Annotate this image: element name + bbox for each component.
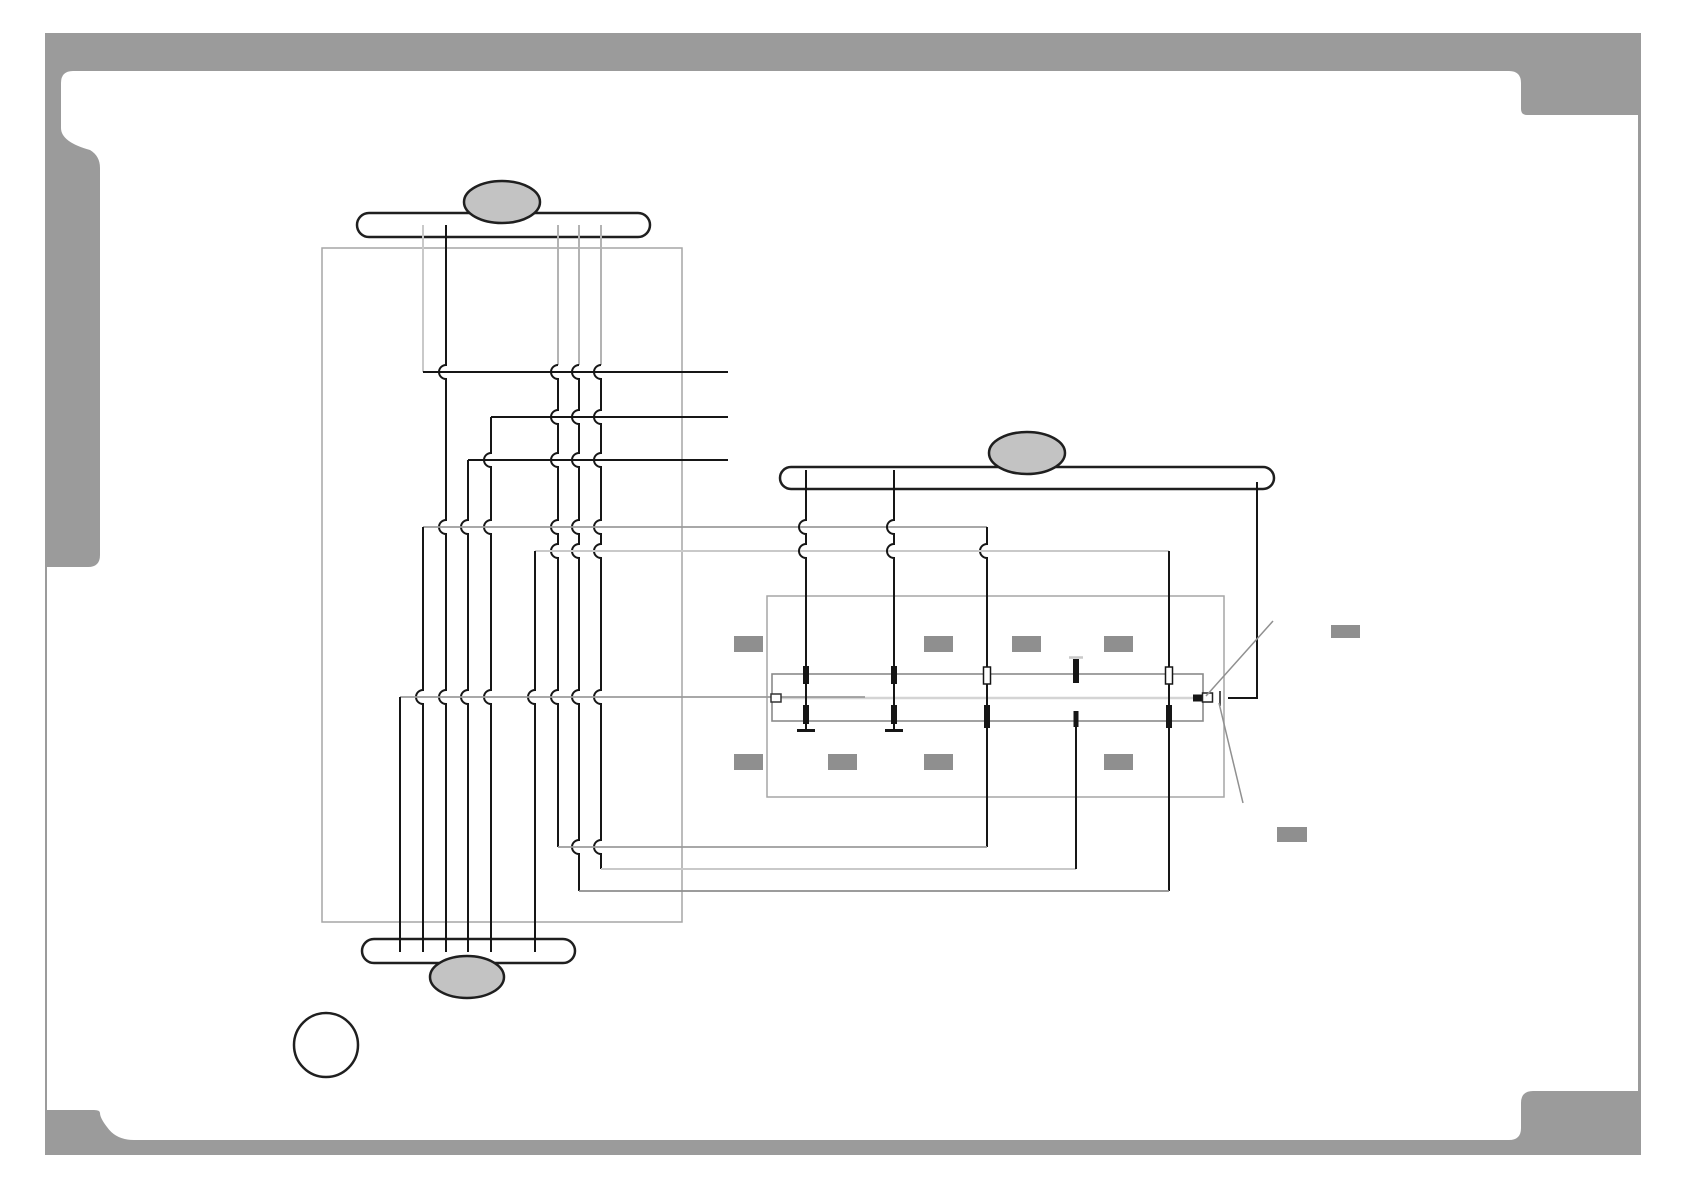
strip-pin-806-bottom (803, 705, 809, 724)
wiring-diagram-canvas (0, 0, 1684, 1190)
label-tab-upper-3 (1012, 636, 1041, 652)
label-tab-lower-1 (734, 754, 763, 770)
wire-v7 (572, 365, 579, 891)
label-tab-upper-1 (734, 636, 763, 652)
strip-pin-987-bottom (984, 705, 990, 728)
wire-v6 (551, 365, 558, 847)
wire-v3 (461, 460, 468, 952)
leader-line-lower (1219, 703, 1243, 803)
label-tab-lower-3 (924, 754, 953, 770)
wire-v1076-pin (1073, 659, 1079, 683)
wire-v8 (594, 365, 601, 869)
wire-v1076-thick (1074, 711, 1079, 727)
callout-tab-right-upper (1331, 625, 1360, 638)
cable-oval-middle (989, 432, 1065, 474)
strip-pin-806-top (803, 666, 809, 684)
page-frame (45, 33, 1641, 1155)
strip-left-connector (771, 694, 781, 702)
wire-v894 (887, 470, 894, 729)
label-tab-upper-2 (924, 636, 953, 652)
board-outline-left (322, 248, 682, 922)
label-tab-upper-4 (1104, 636, 1133, 652)
strip-pin-1169-top-hollow (1166, 667, 1173, 684)
strip-pin-894-bottom (891, 705, 897, 724)
callout-tab-right-lower (1277, 827, 1307, 842)
cable-oval-top (464, 181, 540, 223)
strip-pin-987-top-hollow (984, 667, 991, 684)
wire-v1-lower (416, 527, 423, 952)
strip-pin-894-top (891, 666, 897, 684)
wire-v4 (484, 417, 491, 952)
strip-pin-1169-bottom (1166, 705, 1172, 728)
wire-v2 (439, 225, 446, 952)
wire-v987 (980, 527, 987, 847)
callout-circle (294, 1013, 358, 1077)
cable-oval-bottom (430, 956, 504, 998)
leader-line-upper (1206, 621, 1273, 696)
label-tab-lower-2 (828, 754, 857, 770)
label-tab-lower-4 (1104, 754, 1133, 770)
wire-v806 (799, 470, 806, 729)
manual-page (0, 0, 1684, 1190)
wire-v5 (528, 551, 535, 952)
